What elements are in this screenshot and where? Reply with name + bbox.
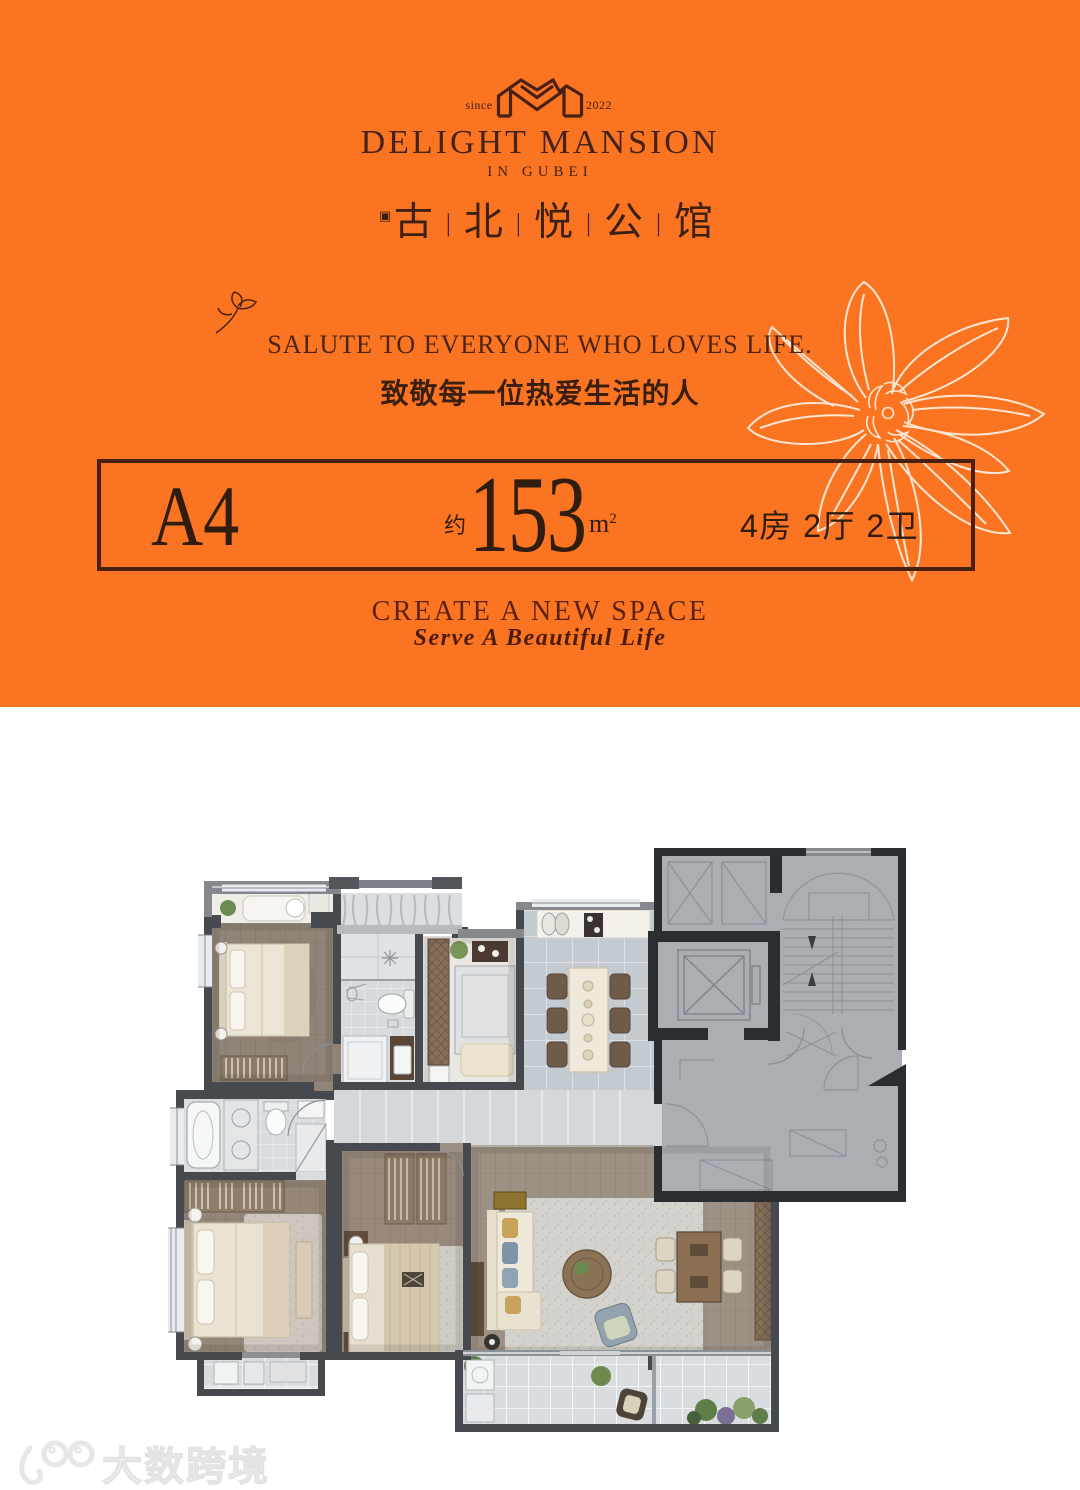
svg-text:大数跨境: 大数跨境: [102, 1445, 270, 1489]
